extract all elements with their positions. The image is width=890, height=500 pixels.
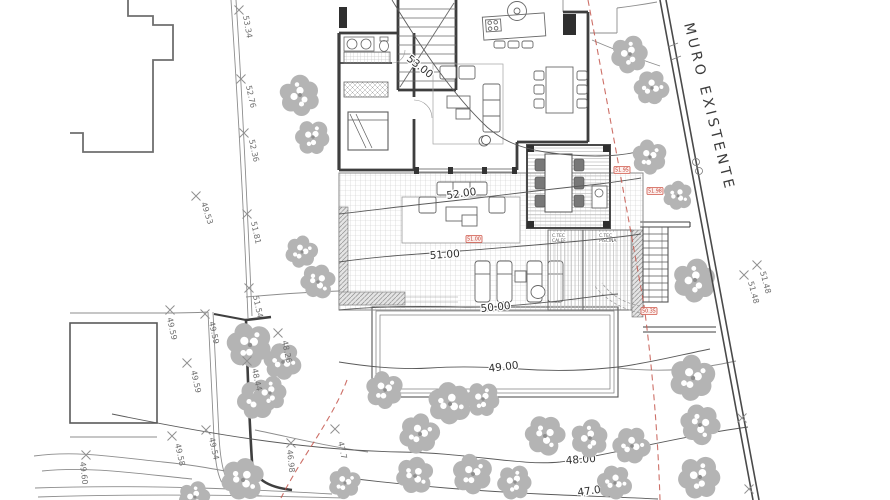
- svg-text:50.35: 50.35: [642, 309, 656, 315]
- red-tag: 51.95: [614, 167, 630, 174]
- svg-text:51.98: 51.98: [648, 189, 662, 195]
- site-plan-canvas: C.TEC CALEF C.TEC PISCINA: [0, 0, 890, 500]
- svg-text:51.00: 51.00: [467, 237, 481, 243]
- technical-rooms: C.TEC CALEF C.TEC PISCINA: [548, 230, 643, 317]
- wall-pier: [339, 7, 347, 28]
- outdoor-table: [545, 154, 572, 212]
- dining-area: [534, 67, 587, 113]
- site-plan-drawing: C.TEC CALEF C.TEC PISCINA: [0, 0, 890, 500]
- wardrobe: [344, 82, 388, 97]
- red-tag: 51.00: [466, 236, 482, 243]
- wall-pier: [563, 14, 576, 35]
- terrace-edge-wall-bottom: [339, 292, 405, 305]
- pergola: [527, 145, 610, 228]
- contour-label: 51.00: [429, 248, 460, 262]
- red-tag: 50.35: [641, 308, 657, 315]
- terrace-edge-wall-left: [339, 207, 348, 305]
- red-tag: 51.98: [647, 188, 663, 195]
- pool: [372, 307, 618, 397]
- svg-text:51.95: 51.95: [615, 168, 629, 174]
